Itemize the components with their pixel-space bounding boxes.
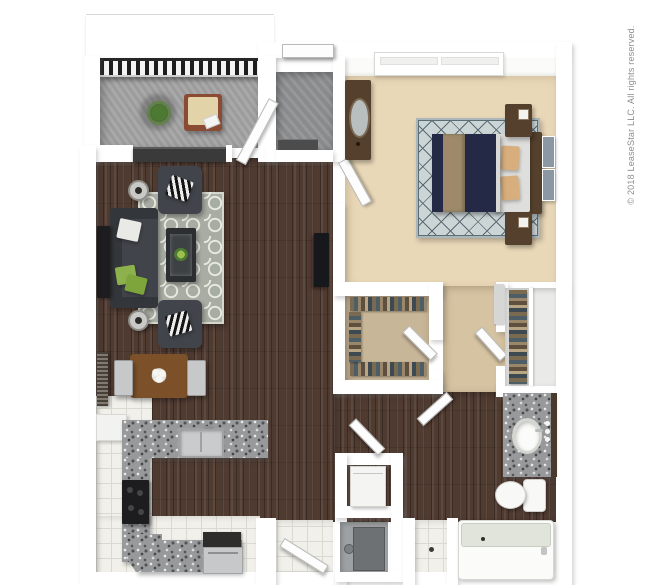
bed-comforter — [432, 134, 500, 212]
wall-laundry-east — [391, 453, 403, 585]
patio-chair — [184, 94, 222, 131]
dishwasher-handle — [208, 552, 238, 554]
wall-right — [556, 42, 572, 585]
coffee-table — [166, 228, 196, 282]
closet-clothes-top — [350, 297, 426, 311]
potted-plant — [150, 104, 168, 122]
kitchen-sink — [178, 428, 224, 458]
nightstand-frame — [518, 109, 529, 120]
linen-shelf-edge — [529, 288, 533, 386]
linen-shelf-clothes — [509, 290, 527, 384]
dresser-mirror — [349, 98, 370, 138]
heater-valve — [344, 544, 354, 554]
bed-headboard — [528, 132, 542, 214]
sliding-door-track — [133, 147, 226, 162]
front-door — [282, 44, 334, 58]
balcony-floor — [100, 70, 258, 148]
bed-pillow-tan-2 — [500, 175, 520, 200]
floor-lamp-top — [128, 180, 149, 201]
sofa-pillow-green-2 — [124, 274, 148, 295]
washer-lid-line — [353, 473, 383, 474]
wall-left — [80, 146, 96, 585]
dresser-knob — [356, 142, 360, 146]
sofa-arm-bottom — [110, 297, 158, 308]
heater-body — [353, 527, 385, 571]
balcony-parapet — [86, 14, 274, 61]
bed-runner — [443, 134, 465, 212]
wall-living-north-pier — [226, 145, 232, 162]
sink-faucet — [204, 426, 214, 429]
stove-burner — [127, 487, 133, 493]
dining-chair-right — [187, 360, 206, 396]
vanity-counter — [503, 393, 553, 477]
bathtub-drain — [481, 537, 485, 541]
wall-art-2 — [542, 169, 555, 201]
table-plant — [174, 248, 188, 261]
wall-bedroom-left-lower — [333, 203, 345, 394]
balcony-railing — [100, 58, 274, 77]
door-panel — [494, 284, 504, 324]
wall-living-north-east — [266, 145, 276, 162]
wall-closet-south — [333, 380, 443, 394]
dining-table — [130, 354, 188, 398]
vanity-faucet — [535, 429, 543, 432]
nightstand-top — [505, 104, 532, 137]
lamp-center — [135, 317, 142, 324]
armchair-top — [158, 166, 202, 214]
wall-entry-right-upper — [333, 56, 345, 162]
vanity-cabinet-edge — [551, 393, 557, 477]
window-pane — [380, 57, 438, 65]
wall-kitchen-doorway — [256, 518, 276, 585]
bedroom-window — [374, 52, 504, 76]
floor-lamp-bottom — [128, 310, 149, 331]
vanity-sink — [512, 418, 542, 454]
closet-clothes-bottom — [350, 362, 426, 376]
sofa — [110, 208, 158, 308]
dining-chair-left — [114, 360, 133, 396]
bathtub-faucet — [541, 547, 547, 555]
wall-art-1 — [542, 136, 555, 168]
linen-closet-interior — [505, 288, 556, 386]
entry-door-track — [278, 139, 318, 150]
water-heater — [340, 522, 388, 572]
armchair-pillow-zebra — [165, 310, 193, 337]
console-shelf — [97, 352, 108, 406]
armchair-pillow-zebra — [165, 175, 194, 203]
vanity-accessory — [545, 421, 550, 426]
plant-leaves — [144, 98, 174, 128]
stove — [122, 480, 149, 524]
dining-centerpiece — [148, 365, 170, 386]
washer — [350, 466, 386, 507]
wall-bathnook-left — [403, 518, 415, 585]
sofa-pillow-white — [116, 218, 142, 242]
nightstand-frame — [518, 217, 529, 228]
sofa-arm-top — [110, 208, 158, 219]
wall-tv-left — [97, 226, 110, 298]
living-tv — [314, 233, 329, 287]
toilet-tank — [523, 479, 546, 512]
dresser — [345, 80, 371, 160]
wall-entry-south — [276, 150, 333, 162]
sink-basin-divider — [200, 432, 202, 452]
wall-closet-east-upper — [429, 282, 443, 340]
dishwasher-counter — [203, 532, 241, 547]
floorplan-image: © 2018 LeaseStar LLC. All rights reserve… — [0, 0, 650, 585]
copyright-text: © 2018 LeaseStar LLC. All rights reserve… — [626, 20, 640, 210]
bathtub-rim — [461, 523, 551, 547]
lamp-center — [135, 187, 142, 194]
toilet-bowl — [495, 481, 526, 509]
wall-tub-end — [447, 518, 458, 585]
armchair-bottom — [158, 300, 202, 348]
dishwasher — [203, 547, 243, 574]
closet-clothes-left — [349, 312, 361, 362]
window-pane — [441, 57, 499, 65]
bed-pillow-tan-1 — [500, 146, 519, 171]
wall-bedroom-south-west — [333, 282, 443, 296]
nightstand-bottom — [505, 212, 532, 245]
bathtub — [458, 520, 554, 580]
floor-drain — [429, 547, 434, 552]
